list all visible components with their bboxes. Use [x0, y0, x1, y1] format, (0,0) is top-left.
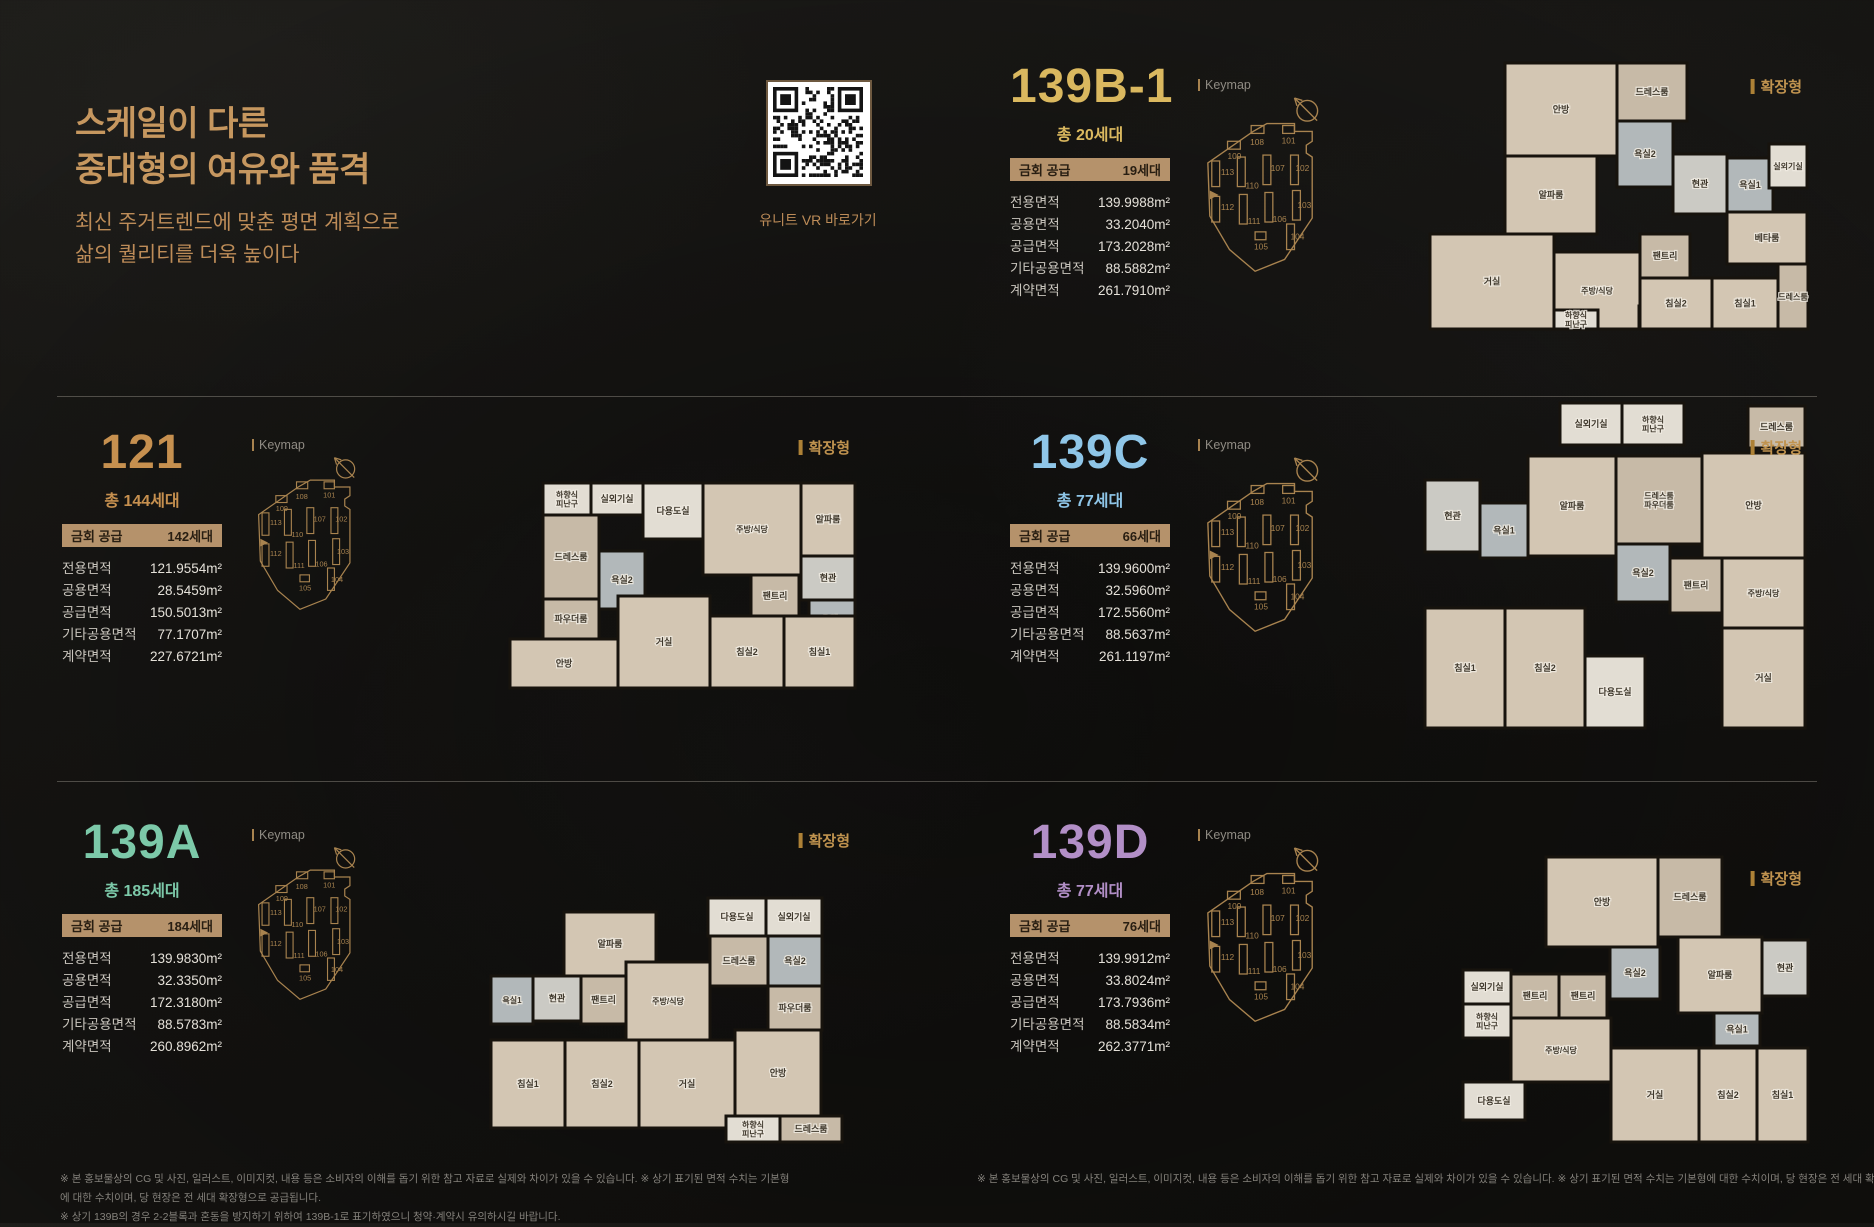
room-label: 팬트리	[1523, 990, 1548, 1001]
page-title: 스케일이 다른 중대형의 여유와 품격	[75, 101, 370, 193]
area-row: 전용면적139.9912m²	[1010, 948, 1170, 970]
keymap-building-number: 105	[299, 973, 311, 982]
area-row-label: 기타공용면적	[1010, 1014, 1085, 1036]
keymap-building-number: 106	[1273, 574, 1287, 584]
room-label: 안방	[556, 658, 573, 669]
room-label: 욕실1	[502, 995, 522, 1005]
area-row-value: 261.1197m²	[1099, 646, 1170, 668]
area-row-label: 전용면적	[1010, 192, 1060, 214]
keymap-label: Keymap	[1198, 828, 1251, 842]
row-separator	[57, 396, 1817, 397]
area-row-value: 28.5459m²	[157, 580, 222, 602]
room-label: 드레스룸	[1778, 291, 1808, 301]
disclaimer-left: ※ 본 홍보물상의 CG 및 사진, 일러스트, 이미지컷, 내용 등은 소비자…	[60, 1170, 790, 1227]
area-row: 기타공용면적88.5637m²	[1010, 624, 1170, 646]
keymap-building-number: 113	[270, 908, 282, 917]
keymap-building-number: 107	[314, 514, 326, 523]
room-label: 현관	[1692, 178, 1709, 189]
area-row-label: 공용면적	[1010, 214, 1060, 236]
keymap-building-number: 105	[299, 583, 311, 592]
room-label: 거실	[679, 1078, 696, 1089]
keymap-building	[324, 482, 334, 489]
area-row-value: 33.8024m²	[1105, 970, 1170, 992]
keymap-site-plan: 108101109113110107102112111106103105104	[1198, 846, 1326, 1033]
keymap-building	[1265, 192, 1273, 222]
keymap-drawing: 108101109113110107102112111106103105104	[1198, 456, 1326, 638]
area-row-label: 기타공용면적	[62, 1014, 137, 1036]
compass-icon	[334, 458, 354, 478]
expand-type-badge: 확장형	[1751, 868, 1802, 889]
area-row-value: 150.5013m²	[150, 602, 222, 624]
area-row-label: 계약면적	[62, 1036, 112, 1058]
keymap-building-number: 101	[1282, 135, 1296, 145]
supply-badge: 금회 공급 19세대	[1010, 158, 1170, 181]
keymap-building-number: 110	[1245, 931, 1259, 941]
area-row-label: 공용면적	[1010, 580, 1060, 602]
room-label: 침실1	[809, 646, 831, 657]
room-label: 실외기실	[777, 911, 810, 922]
keymap-building-number: 108	[296, 492, 308, 501]
keymap-building-number: 104	[1290, 232, 1304, 242]
area-row-label: 공용면적	[62, 970, 112, 992]
area-row: 전용면적139.9988m²	[1010, 192, 1170, 214]
area-row-label: 전용면적	[62, 948, 112, 970]
room-label: 다용도실	[1477, 1095, 1510, 1106]
keymap-building-number: 101	[1282, 495, 1296, 505]
keymap-building-number: 107	[1271, 163, 1285, 173]
area-row: 기타공용면적88.5882m²	[1010, 258, 1170, 280]
area-row: 공급면적150.5013m²	[62, 602, 222, 624]
area-row: 공용면적28.5459m²	[62, 580, 222, 602]
unit-title: 139A	[62, 818, 222, 868]
unit-total-households: 총 77세대	[1010, 487, 1170, 511]
expand-bar-icon	[799, 833, 803, 848]
keymap-building	[1239, 554, 1247, 584]
area-row-label: 계약면적	[1010, 646, 1060, 668]
keymap-building	[1212, 161, 1220, 187]
room-label: 침실1	[1772, 1089, 1794, 1100]
room-label: 주방/식당	[1748, 588, 1780, 598]
disclaimer-line: ※ 상기 139B의 경우 2-2블록과 혼동을 방지하기 위하여 139B-1…	[60, 1208, 790, 1227]
area-row-value: 88.5783m²	[157, 1014, 222, 1036]
room-label: 다용도실	[1598, 686, 1631, 697]
area-row: 계약면적227.6721m²	[62, 646, 222, 668]
keymap-building-number: 113	[1221, 917, 1235, 927]
room-label: 안방	[1745, 500, 1762, 511]
keymap-building	[1239, 194, 1247, 224]
room-label: 거실	[656, 636, 673, 647]
area-row-label: 기타공용면적	[1010, 258, 1085, 280]
area-row: 공용면적32.3350m²	[62, 970, 222, 992]
room-label: 팬트리	[1684, 580, 1709, 591]
keymap-building	[1212, 911, 1220, 937]
area-row: 공급면적173.2028m²	[1010, 236, 1170, 258]
supply-badge: 금회 공급 76세대	[1010, 914, 1170, 937]
keymap-location-marker	[260, 539, 268, 547]
vr-qr-code	[766, 80, 872, 186]
room-label: 드레스룸	[554, 551, 587, 562]
keymap-site-plan: 108101109113110107102112111106103105104	[1198, 456, 1326, 643]
area-table: 전용면적139.9912m²공용면적33.8024m²공급면적173.7936m…	[1010, 948, 1170, 1057]
floorplan-121: 하향식피난구실외기실다용도실주방/식당알파룸드레스룸파우더룸욕실2팬트리현관욕실…	[505, 478, 860, 693]
area-row-label: 계약면적	[1010, 1036, 1060, 1058]
unit-info-139d: 139D 총 77세대 금회 공급 76세대 전용면적139.9912m²공용면…	[1010, 818, 1170, 1057]
keymap-drawing: 108101109113110107102112111106103105104	[250, 456, 362, 615]
supply-value: 19세대	[1123, 160, 1161, 179]
room-label: 드레스룸	[794, 1123, 827, 1134]
area-row-value: 172.3180m²	[150, 992, 222, 1014]
keymap-building-number: 104	[331, 965, 343, 974]
area-row-value: 88.5834m²	[1105, 1014, 1170, 1036]
room-label: 침실2	[736, 646, 758, 657]
keymap-building-number: 112	[270, 939, 282, 948]
room-label: 주방/식당	[1545, 1045, 1577, 1055]
keymap-location-marker	[260, 929, 268, 937]
keymap-label: Keymap	[252, 438, 305, 452]
unit-info-121: 121 총 144세대 금회 공급 142세대 전용면적121.9554m²공용…	[62, 428, 222, 667]
expand-type-badge: 확장형	[1751, 437, 1802, 458]
keymap-label: Keymap	[1198, 78, 1251, 92]
room-label: 알파룸	[1560, 500, 1585, 511]
area-row-value: 32.3350m²	[157, 970, 222, 992]
keymap-building	[1212, 521, 1220, 547]
room-label: 하향식피난구	[1565, 310, 1588, 329]
room-label: 거실	[1647, 1089, 1664, 1100]
room-label: 실외기실	[1470, 981, 1503, 992]
room-label: 팬트리	[1571, 990, 1596, 1001]
room-label: 침실2	[1665, 298, 1687, 309]
keymap-building-number: 105	[1254, 602, 1268, 612]
area-row-value: 172.5560m²	[1098, 602, 1170, 624]
keymap-building-number: 108	[296, 882, 308, 891]
keymap-building-number: 108	[1250, 497, 1264, 507]
keymap-building-number: 112	[270, 549, 282, 558]
keymap-bar-icon	[1198, 79, 1200, 91]
keymap-building-number: 102	[335, 904, 347, 913]
room-label: 현관	[549, 993, 566, 1004]
keymap-building	[262, 934, 269, 956]
keymap-building-number: 103	[337, 547, 349, 556]
room-label: 욕실2	[1624, 967, 1646, 978]
area-row-value: 173.7936m²	[1098, 992, 1170, 1014]
area-row-value: 88.5882m²	[1105, 258, 1170, 280]
keymap-building-number: 109	[1227, 511, 1241, 521]
keymap-building	[1263, 905, 1271, 935]
room-label: 욕실2	[1632, 567, 1654, 578]
room-label: 현관	[1777, 962, 1794, 973]
room-label: 실외기실	[600, 493, 633, 504]
unit-total-households: 총 144세대	[62, 487, 222, 511]
supply-label: 금회 공급	[1019, 160, 1070, 179]
room-label: 침실2	[591, 1078, 613, 1089]
keymap-building	[1263, 515, 1271, 545]
disclaimer-line: ※ 본 홍보물상의 CG 및 사진, 일러스트, 이미지컷, 내용 등은 소비자…	[60, 1170, 790, 1208]
area-row-value: 173.2028m²	[1098, 236, 1170, 258]
area-row: 공급면적172.5560m²	[1010, 602, 1170, 624]
keymap-building	[1212, 946, 1220, 972]
room-label: 팬트리	[591, 994, 616, 1005]
disclaimer-line: ※ 본 홍보물상의 CG 및 사진, 일러스트, 이미지컷, 내용 등은 소비자…	[977, 1170, 1874, 1189]
area-row: 전용면적139.9830m²	[62, 948, 222, 970]
area-row: 계약면적261.1197m²	[1010, 646, 1170, 668]
keymap-building	[1283, 876, 1295, 884]
floorplan-139b1: 안방드레스룸욕실2알파룸현관욕실1실외기실베타룸거실주방/식당하향식피난구다용도…	[1425, 58, 1810, 336]
expand-type-badge: 확장형	[799, 830, 850, 851]
keymap-building	[300, 575, 309, 582]
keymap-building	[1265, 552, 1273, 582]
area-row: 공용면적33.2040m²	[1010, 214, 1170, 236]
area-row-value: 139.9830m²	[150, 948, 222, 970]
keymap-building	[284, 509, 291, 535]
keymap-building-number: 106	[315, 559, 327, 568]
area-row-value: 32.5960m²	[1105, 580, 1170, 602]
room-label: 드레스룸파우더룸	[1644, 490, 1674, 509]
keymap-bar-icon	[1198, 439, 1200, 451]
area-row: 공용면적33.8024m²	[1010, 970, 1170, 992]
keymap-drawing: 108101109113110107102112111106103105104	[1198, 96, 1326, 278]
supply-label: 금회 공급	[1019, 916, 1070, 935]
room-label: 현관	[1444, 510, 1461, 521]
keymap-building	[1265, 942, 1273, 972]
keymap-building-number: 111	[1248, 576, 1261, 586]
keymap-site-plan: 108101109113110107102112111106103105104	[250, 456, 362, 620]
expand-bar-icon	[799, 440, 803, 455]
keymap-building-number: 104	[1290, 982, 1304, 992]
keymap-building-number: 102	[1295, 913, 1309, 923]
area-row-label: 기타공용면적	[62, 624, 137, 646]
area-row-value: 260.8962m²	[150, 1036, 222, 1058]
room-label: 드레스룸	[1673, 891, 1706, 902]
keymap-building-number: 103	[1297, 200, 1311, 210]
keymap-drawing: 108101109113110107102112111106103105104	[250, 846, 362, 1005]
room-label: 하향식피난구	[1476, 1011, 1499, 1030]
area-row-value: 139.9600m²	[1098, 558, 1170, 580]
area-row: 공급면적172.3180m²	[62, 992, 222, 1014]
keymap-building-number: 103	[337, 937, 349, 946]
expand-type-badge: 확장형	[1751, 76, 1802, 97]
room-label: 팬트리	[1653, 250, 1678, 261]
area-row: 계약면적261.7910m²	[1010, 280, 1170, 302]
qr-code-modules	[773, 87, 863, 177]
keymap-building-number: 109	[276, 894, 288, 903]
keymap-building	[1237, 157, 1245, 187]
area-row-label: 공용면적	[1010, 970, 1060, 992]
supply-badge: 금회 공급 184세대	[62, 914, 222, 937]
keymap-building-number: 106	[1273, 964, 1287, 974]
area-row-value: 33.2040m²	[1105, 214, 1170, 236]
keymap-building-number: 108	[1250, 887, 1264, 897]
supply-value: 76세대	[1123, 916, 1161, 935]
keymap-building-number: 112	[1221, 202, 1235, 212]
area-row: 기타공용면적88.5783m²	[62, 1014, 222, 1036]
room-label: 현관	[820, 572, 837, 583]
area-row-value: 227.6721m²	[150, 646, 222, 668]
keymap-building	[1255, 982, 1266, 990]
room-label: 침실1	[517, 1078, 539, 1089]
room-label: 침실1	[1454, 662, 1476, 673]
room-label: 드레스룸	[722, 955, 755, 966]
keymap-building-number: 107	[1271, 913, 1285, 923]
keymap-building	[262, 903, 269, 925]
supply-label: 금회 공급	[1019, 526, 1070, 545]
area-row-label: 공급면적	[1010, 602, 1060, 624]
supply-value: 66세대	[1123, 526, 1161, 545]
room-label: 침실2	[1717, 1089, 1739, 1100]
floorplan-139d: 안방드레스룸알파룸욕실2현관욕실1실외기실하향식피난구팬트리팬트리주방/식당다용…	[1458, 852, 1813, 1152]
keymap-building-number: 110	[292, 530, 304, 539]
expand-bar-icon	[1751, 871, 1755, 886]
page-subtitle: 최신 주거트렌드에 맞춘 평면 계획으로 삶의 퀄리티를 더욱 높이다	[75, 207, 400, 272]
area-row: 공용면적32.5960m²	[1010, 580, 1170, 602]
keymap-building	[300, 965, 309, 972]
area-row-value: 77.1707m²	[157, 624, 222, 646]
keymap-building	[1212, 556, 1220, 582]
area-row-value: 88.5637m²	[1105, 624, 1170, 646]
keymap-building	[324, 872, 334, 879]
area-row: 전용면적139.9600m²	[1010, 558, 1170, 580]
keymap-building	[309, 540, 316, 566]
keymap-bar-icon	[252, 439, 254, 451]
row-separator	[57, 781, 1817, 782]
area-row-value: 139.9988m²	[1098, 192, 1170, 214]
keymap-building	[1263, 155, 1271, 185]
area-row: 계약면적260.8962m²	[62, 1036, 222, 1058]
compass-icon	[334, 848, 354, 868]
area-table: 전용면적139.9830m²공용면적32.3350m²공급면적172.3180m…	[62, 948, 222, 1057]
keymap-building-number: 110	[1245, 181, 1259, 191]
unit-title: 139C	[1010, 428, 1170, 478]
keymap-building	[1283, 486, 1295, 494]
keymap-building-number: 106	[315, 949, 327, 958]
keymap-building-number: 105	[1254, 242, 1268, 252]
room-label: 안방	[770, 1067, 787, 1078]
keymap-drawing: 108101109113110107102112111106103105104	[1198, 846, 1326, 1028]
compass-icon	[1294, 98, 1317, 121]
keymap-building-number: 105	[1254, 992, 1268, 1002]
room-label: 욕실2	[611, 574, 633, 585]
room-label: 파우더룸	[778, 1002, 811, 1013]
room-label: 침실2	[1534, 662, 1556, 673]
keymap-building-number: 111	[294, 951, 305, 960]
area-row-label: 공급면적	[1010, 236, 1060, 258]
keymap-building-number: 107	[314, 904, 326, 913]
qr-caption: 유니트 VR 바로가기	[736, 210, 900, 230]
room-label: 침실1	[1734, 298, 1756, 309]
keymap-building-number: 102	[1295, 163, 1309, 173]
room-label: 실외기실	[1574, 418, 1607, 429]
keymap-building	[1212, 196, 1220, 222]
room-label: 하향식피난구	[1642, 414, 1665, 433]
keymap-building	[309, 930, 316, 956]
area-row-label: 공용면적	[62, 580, 112, 602]
unit-title: 139D	[1010, 818, 1170, 868]
area-row: 계약면적262.3771m²	[1010, 1036, 1170, 1058]
area-table: 전용면적139.9988m²공용면적33.2040m²공급면적173.2028m…	[1010, 192, 1170, 301]
keymap-building-number: 102	[335, 514, 347, 523]
area-row-label: 계약면적	[62, 646, 112, 668]
keymap-building	[1237, 907, 1245, 937]
keymap-site-plan: 108101109113110107102112111106103105104	[250, 846, 362, 1010]
keymap-building-number: 112	[1221, 952, 1235, 962]
keymap-building-number: 101	[1282, 885, 1296, 895]
compass-icon	[1294, 458, 1317, 481]
room-label: 거실	[1755, 672, 1772, 683]
room-label: 드레스룸	[1760, 421, 1793, 432]
keymap-building-number: 109	[276, 504, 288, 513]
keymap-building	[307, 898, 314, 924]
keymap-building-number: 113	[270, 518, 282, 527]
area-row: 기타공용면적88.5834m²	[1010, 1014, 1170, 1036]
room-label: 실외기실	[1773, 161, 1802, 171]
keymap-building-number: 104	[331, 575, 343, 584]
room-label: 욕실1	[1493, 525, 1515, 536]
keymap-building	[286, 542, 293, 568]
area-row-label: 공급면적	[1010, 992, 1060, 1014]
area-row-value: 262.3771m²	[1098, 1036, 1170, 1058]
keymap-building-number: 101	[323, 490, 335, 499]
unit-title: 121	[62, 428, 222, 478]
room-label: 알파룸	[598, 938, 623, 949]
area-row-label: 전용면적	[62, 558, 112, 580]
room-label: 다용도실	[656, 505, 689, 516]
supply-value: 184세대	[167, 916, 213, 935]
supply-badge: 금회 공급 142세대	[62, 524, 222, 547]
compass-icon	[1294, 848, 1317, 871]
area-row-value: 121.9554m²	[150, 558, 222, 580]
room-label: 주방/식당	[652, 996, 684, 1006]
area-row-value: 139.9912m²	[1098, 948, 1170, 970]
room-label: 하향식피난구	[742, 1119, 765, 1138]
keymap-building	[1255, 592, 1266, 600]
area-row: 공급면적173.7936m²	[1010, 992, 1170, 1014]
keymap-bar-icon	[1198, 829, 1200, 841]
expand-bar-icon	[1751, 79, 1755, 94]
keymap-building-number: 108	[1250, 137, 1264, 147]
keymap-building-number: 107	[1271, 523, 1285, 533]
room-label: 욕실1	[1726, 1024, 1748, 1035]
supply-label: 금회 공급	[71, 526, 122, 545]
keymap-building-number: 112	[1221, 562, 1235, 572]
keymap-building	[262, 513, 269, 535]
supply-value: 142세대	[167, 526, 213, 545]
area-row-label: 기타공용면적	[1010, 624, 1085, 646]
room-label: 하향식피난구	[556, 489, 579, 508]
room-label: 알파룸	[1539, 189, 1564, 200]
keymap-building-number: 113	[1221, 167, 1235, 177]
floorplan-139a: 알파룸다용도실실외기실욕실1현관팬트리주방/식당드레스룸욕실2파우더룸침실1침실…	[486, 884, 856, 1152]
room-label: 욕실1	[1739, 179, 1761, 190]
room-label: 다용도실	[720, 911, 753, 922]
keymap-building-number: 106	[1273, 214, 1287, 224]
area-row-label: 전용면적	[1010, 558, 1060, 580]
unit-total-households: 총 20세대	[1010, 121, 1170, 145]
supply-label: 금회 공급	[71, 916, 122, 935]
room-label: 욕실2	[1634, 148, 1656, 159]
keymap-building-number: 103	[1297, 560, 1311, 570]
area-table: 전용면적139.9600m²공용면적32.5960m²공급면적172.5560m…	[1010, 558, 1170, 667]
area-row-label: 공급면적	[62, 602, 112, 624]
keymap-building-number: 111	[1248, 216, 1261, 226]
expand-bar-icon	[1751, 440, 1755, 455]
keymap-building-number: 109	[1227, 151, 1241, 161]
keymap-label: Keymap	[1198, 438, 1251, 452]
keymap-building-number: 102	[1295, 523, 1309, 533]
keymap-building	[286, 932, 293, 958]
area-row-value: 261.7910m²	[1098, 280, 1170, 302]
keymap-building-number: 110	[292, 920, 304, 929]
keymap-site-plan: 108101109113110107102112111106103105104	[1198, 96, 1326, 283]
keymap-building-number: 113	[1221, 527, 1235, 537]
